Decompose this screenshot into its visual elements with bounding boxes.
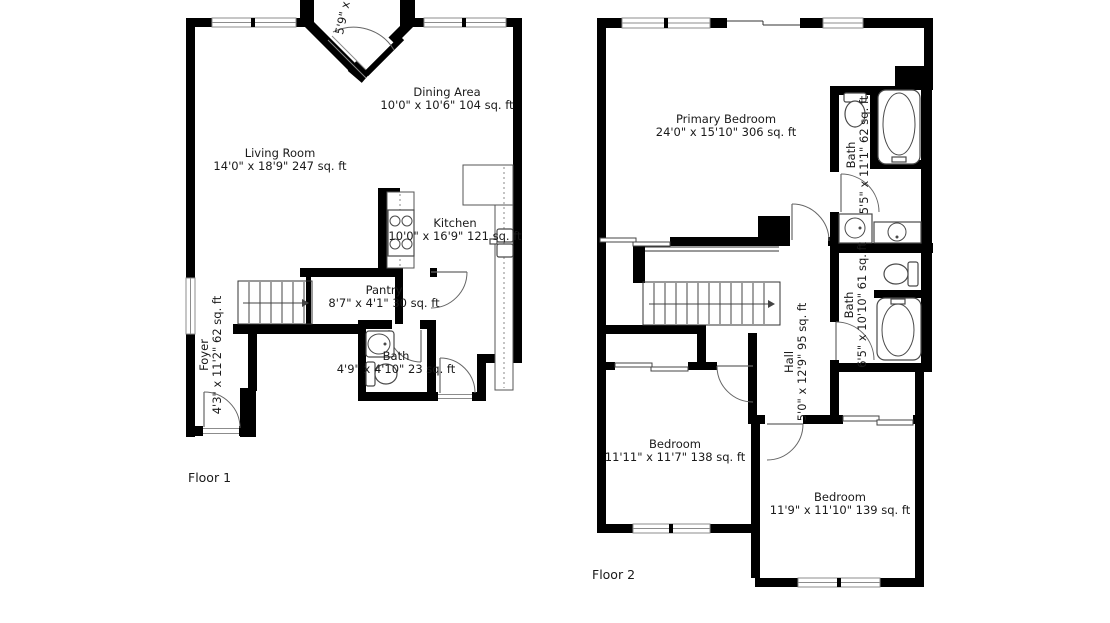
- room-dims: 6'5" x 10'10" 61 sq. ft: [856, 242, 869, 368]
- room-dims: 14'0" x 18'9" 247 sq. ft: [213, 160, 346, 173]
- closet-slider-door: [600, 238, 670, 246]
- floor1-tag: Floor 1: [188, 470, 231, 485]
- primary-bedroom-door-swing: [792, 204, 829, 241]
- bath-hall-label: Bath 6'5" x 10'10" 61 sq. ft: [843, 242, 869, 368]
- window: [186, 278, 195, 334]
- bedroom-left-label: Bedroom 11'11" x 11'7" 138 sq. ft: [605, 438, 745, 464]
- room-dims: 10'0" x 10'6" 104 sq. ft: [380, 99, 513, 112]
- window: [212, 18, 296, 27]
- floorplan-canvas: Living Room 14'0" x 18'9" 247 sq. ft Din…: [0, 0, 1110, 623]
- living-room-label: Living Room 14'0" x 18'9" 247 sq. ft: [213, 147, 346, 173]
- floor2-tag: Floor 2: [592, 567, 635, 582]
- bathtub-icon: [878, 90, 920, 164]
- room-dims: 10'0" x 16'9" 121 sq. ft: [388, 230, 521, 243]
- room-dims: 4'9" x 4'10" 23 sq. ft: [337, 363, 456, 376]
- bathtub-icon: [877, 298, 921, 360]
- closet-slider-door: [843, 416, 913, 425]
- room-dims: 5'5" x 11'1" 62 sq. ft: [858, 96, 871, 215]
- closet-slider-door: [615, 363, 688, 371]
- pantry-label: Pantry 8'7" x 4'1" 30 sq. ft: [328, 284, 439, 310]
- bedroom-right-door-swing: [767, 424, 803, 460]
- room-dims: 5'0" x 12'9" 95 sq. ft: [796, 303, 809, 422]
- primary-bedroom-label: Primary Bedroom 24'0" x 15'10" 306 sq. f…: [656, 113, 796, 139]
- room-dims: 8'7" x 4'1" 30 sq. ft: [328, 297, 439, 310]
- bath-ensuite-label: Bath 5'5" x 11'1" 62 sq. ft: [845, 96, 871, 215]
- vanity-sink-icon: [839, 214, 872, 243]
- vanity-sink-icon: [874, 222, 921, 243]
- dining-area-label: Dining Area 10'0" x 10'6" 104 sq. ft: [380, 86, 513, 112]
- chimney-column: [758, 216, 790, 246]
- kitchen-counter: [463, 165, 513, 205]
- window: [798, 578, 880, 587]
- window: [424, 18, 506, 27]
- stairs-down-arrow: [768, 300, 775, 308]
- window: [633, 524, 710, 533]
- window: [823, 18, 863, 28]
- foyer-label: Foyer 4'3" x 11'2" 62 sq. ft: [198, 296, 224, 415]
- hall-label: Hall 5'0" x 12'9" 95 sq. ft: [783, 303, 809, 422]
- room-dims: 11'9" x 11'10" 139 sq. ft: [770, 504, 910, 517]
- room-dims: 11'11" x 11'7" 138 sq. ft: [605, 451, 745, 464]
- bedroom-right-label: Bedroom 11'9" x 11'10" 139 sq. ft: [770, 491, 910, 517]
- floor1-stairs: [238, 281, 312, 324]
- room-dims: 24'0" x 15'10" 306 sq. ft: [656, 126, 796, 139]
- room-dims: 4'3" x 11'2" 62 sq. ft: [211, 296, 224, 415]
- floor2-stairs: [643, 282, 780, 325]
- bath-floor1-label: Bath 4'9" x 4'10" 23 sq. ft: [337, 350, 456, 376]
- kitchen-label: Kitchen 10'0" x 16'9" 121 sq. ft: [388, 217, 521, 243]
- floorplan-drawing: [0, 0, 1110, 623]
- bedroom-left-door-swing: [717, 366, 753, 402]
- toilet-icon: [884, 262, 918, 286]
- window: [622, 18, 710, 28]
